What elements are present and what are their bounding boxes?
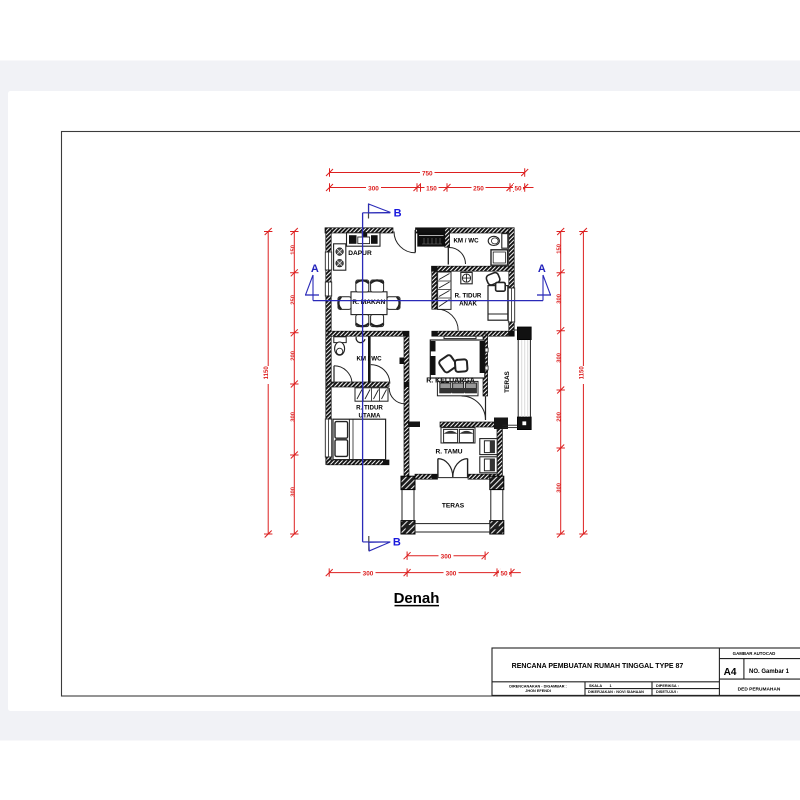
svg-text:DAPUR: DAPUR xyxy=(348,250,372,257)
svg-text:300: 300 xyxy=(446,571,457,578)
svg-text:200: 200 xyxy=(290,351,296,361)
svg-text:300: 300 xyxy=(368,185,379,192)
svg-text:DIRENCANAKAN - DIGAMBAR :: DIRENCANAKAN - DIGAMBAR : xyxy=(509,685,567,689)
svg-text:DED PERUMAHAN: DED PERUMAHAN xyxy=(738,687,781,693)
svg-text:R. TIDUR: R. TIDUR xyxy=(455,292,482,299)
svg-text:GAMBAR AUTOCAD: GAMBAR AUTOCAD xyxy=(733,651,776,656)
svg-text:750: 750 xyxy=(422,170,433,177)
svg-text:300: 300 xyxy=(557,353,563,363)
svg-text:DIPERIKSA :: DIPERIKSA : xyxy=(656,684,679,688)
svg-text:Denah: Denah xyxy=(394,590,440,607)
svg-text:KM / WC: KM / WC xyxy=(453,238,479,245)
svg-text:200: 200 xyxy=(557,412,563,422)
svg-text:RENCANA PEMBUATAN RUMAH TINGGA: RENCANA PEMBUATAN RUMAH TINGGAL TYPE 87 xyxy=(512,663,684,670)
svg-text:50: 50 xyxy=(514,185,522,192)
svg-text:150: 150 xyxy=(426,185,437,192)
svg-text:JHON EFENDI: JHON EFENDI xyxy=(525,689,551,693)
svg-text:DIKERJAKAN : NOVI SIAHAAN: DIKERJAKAN : NOVI SIAHAAN xyxy=(588,690,644,694)
svg-text:300: 300 xyxy=(441,554,452,561)
svg-text:R. TAMU: R. TAMU xyxy=(436,449,463,456)
svg-text:300: 300 xyxy=(557,294,563,304)
svg-text:TERAS: TERAS xyxy=(442,503,465,510)
svg-text:ANAK: ANAK xyxy=(459,301,477,308)
svg-text:1150: 1150 xyxy=(264,366,270,380)
svg-text:300: 300 xyxy=(557,483,563,493)
svg-text:250: 250 xyxy=(473,185,484,192)
svg-text:DISETUJUI :: DISETUJUI : xyxy=(656,690,678,694)
svg-text:300: 300 xyxy=(290,412,296,422)
svg-text:SKALA 1: SKALA 1 xyxy=(589,684,612,688)
svg-text:R. TIDUR: R. TIDUR xyxy=(356,404,383,411)
svg-text:A: A xyxy=(311,263,319,275)
svg-text:B: B xyxy=(394,207,402,219)
svg-text:TERAS: TERAS xyxy=(504,370,511,392)
svg-text:150: 150 xyxy=(290,245,296,255)
svg-text:1150: 1150 xyxy=(579,366,585,380)
svg-text:KM / WC: KM / WC xyxy=(356,355,382,362)
svg-text:300: 300 xyxy=(290,487,296,497)
svg-text:NO. Gambar 1: NO. Gambar 1 xyxy=(749,669,790,675)
svg-text:UTAMA: UTAMA xyxy=(359,413,381,420)
svg-text:B: B xyxy=(393,536,401,548)
svg-text:A4: A4 xyxy=(724,667,737,678)
svg-text:300: 300 xyxy=(363,571,374,578)
svg-text:A: A xyxy=(538,263,546,275)
svg-text:50: 50 xyxy=(500,571,508,578)
svg-text:250: 250 xyxy=(290,295,296,305)
svg-text:150: 150 xyxy=(557,244,563,254)
